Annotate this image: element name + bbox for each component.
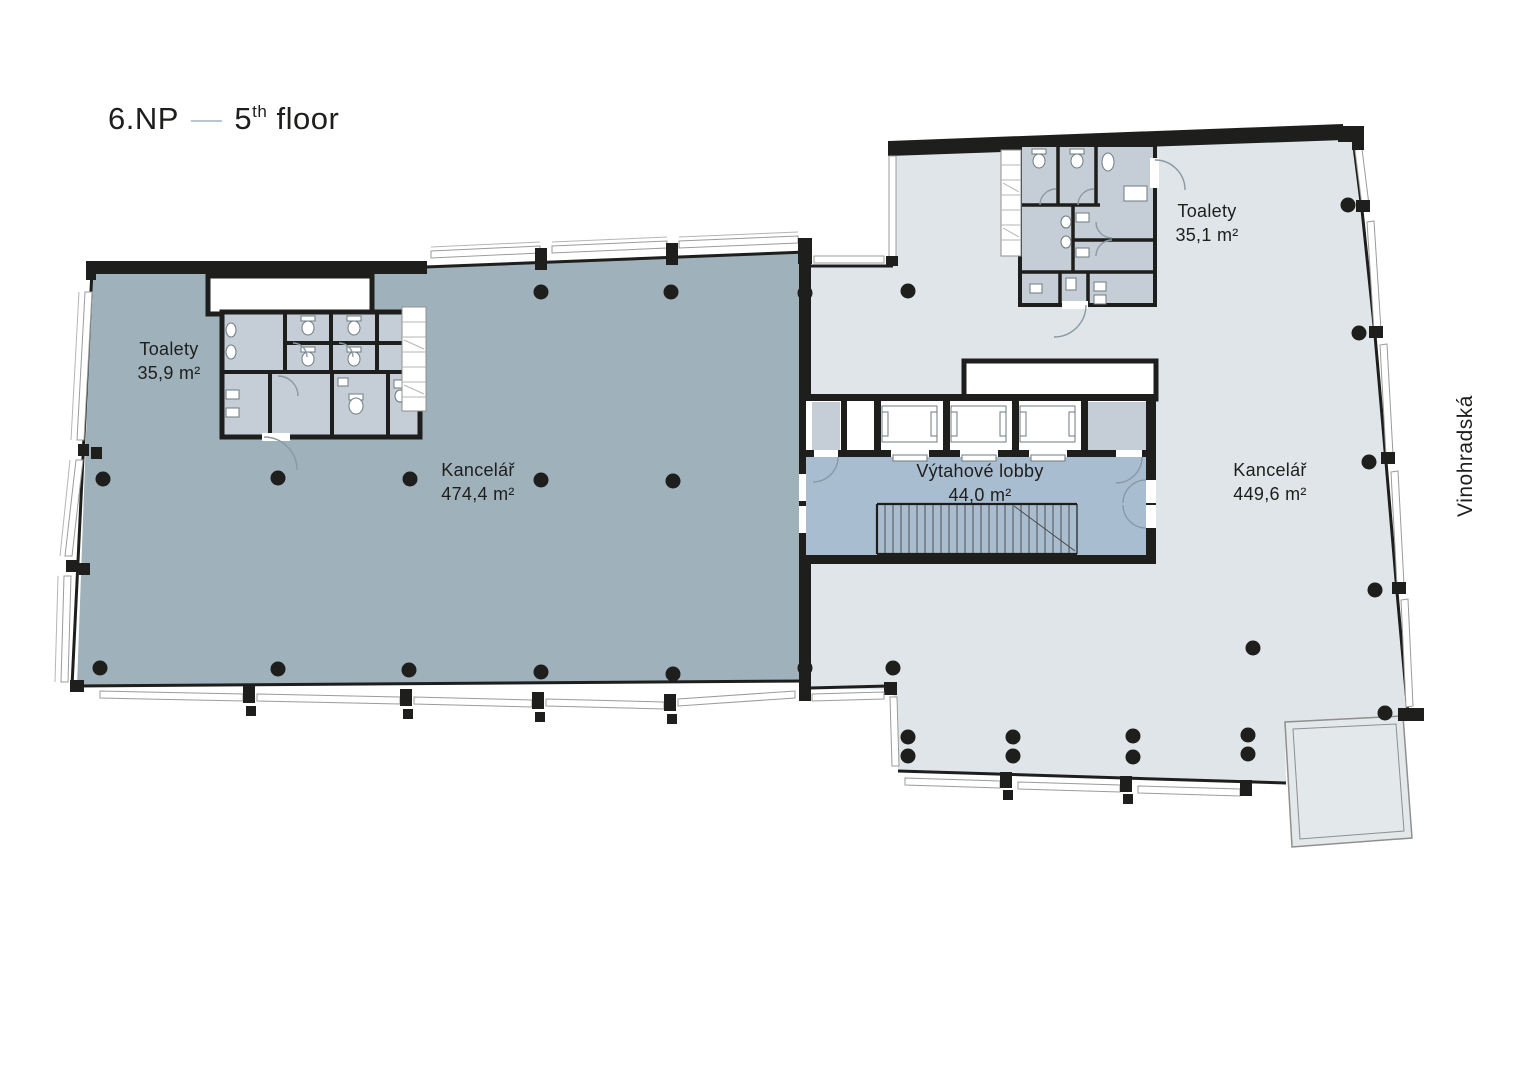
street-label: Vinohradská: [1454, 386, 1478, 526]
column-dot-office-right: [1368, 583, 1383, 598]
shaft-right: [1001, 150, 1021, 256]
floor-title-word: floor: [276, 101, 339, 136]
label-office-right-area: 449,6 m²: [1233, 484, 1306, 504]
column-dot-office-left: [402, 663, 417, 678]
label-toilets-left-name: Toalety: [139, 339, 198, 359]
floorplan-page: 6.NP—5th floor Vinohradská: [0, 0, 1535, 1078]
floor-title-number: 5: [234, 101, 252, 136]
label-office-right-name: Kancelář: [1233, 460, 1307, 480]
column-dot-office-right: [1241, 728, 1256, 743]
label-lobby-area: 44,0 m²: [948, 485, 1011, 505]
label-office-left-name: Kancelář: [441, 460, 515, 480]
shaft-left: [402, 307, 426, 411]
terrace: [1285, 716, 1412, 847]
column-dot-office-right: [901, 730, 916, 745]
label-lobby-name: Výtahové lobby: [916, 461, 1043, 481]
floorplan-svg: Toalety 35,9 m² Kancelář 474,4 m² Výtaho…: [0, 0, 1535, 1078]
column-dot-office-right: [1341, 198, 1356, 213]
label-toilets-right-name: Toalety: [1177, 201, 1236, 221]
column-dot-office-left: [534, 285, 549, 300]
column-dot-office-right: [886, 661, 901, 676]
column-dot-office-left: [664, 285, 679, 300]
column-dot-office-left: [798, 286, 813, 301]
column-dot-office-right: [1241, 747, 1256, 762]
column-dot-office-right: [1246, 641, 1261, 656]
column-dot-office-left: [666, 667, 681, 682]
column-dot-office-right: [901, 749, 916, 764]
column-dot-office-right: [1352, 326, 1367, 341]
column-dot-office-right: [1126, 750, 1141, 765]
column-dot-office-right: [1006, 749, 1021, 764]
column-dot-office-left: [96, 472, 111, 487]
column-dot-office-right: [1126, 729, 1141, 744]
column-dot-office-right: [901, 284, 916, 299]
column-dot-office-left: [534, 473, 549, 488]
toilets-left-block: [222, 312, 420, 437]
label-toilets-left-area: 35,9 m²: [137, 363, 200, 383]
wall-top-left: [88, 261, 427, 274]
floor-title: 6.NP—5th floor: [108, 101, 339, 137]
floor-title-czech: 6.NP: [108, 101, 179, 136]
column-dot-office-left: [534, 665, 549, 680]
label-toilets-right-area: 35,1 m²: [1175, 225, 1238, 245]
elevator-cars: [882, 406, 1075, 442]
floor-title-suffix: th: [252, 102, 267, 121]
column-dot-office-left: [798, 661, 813, 676]
column-dot-office-left: [403, 472, 418, 487]
column-dot-office-left: [271, 662, 286, 677]
title-dash: —: [191, 101, 223, 136]
column-dot-office-right: [1362, 455, 1377, 470]
recess-core: [964, 361, 1156, 399]
column-dot-office-left: [93, 661, 108, 676]
column-dot-office-right: [1378, 706, 1393, 721]
column-dot-office-right: [1006, 730, 1021, 745]
recess-left: [208, 276, 372, 314]
column-dot-office-left: [271, 471, 286, 486]
column-dot-office-left: [666, 474, 681, 489]
label-office-left-area: 474,4 m²: [441, 484, 514, 504]
